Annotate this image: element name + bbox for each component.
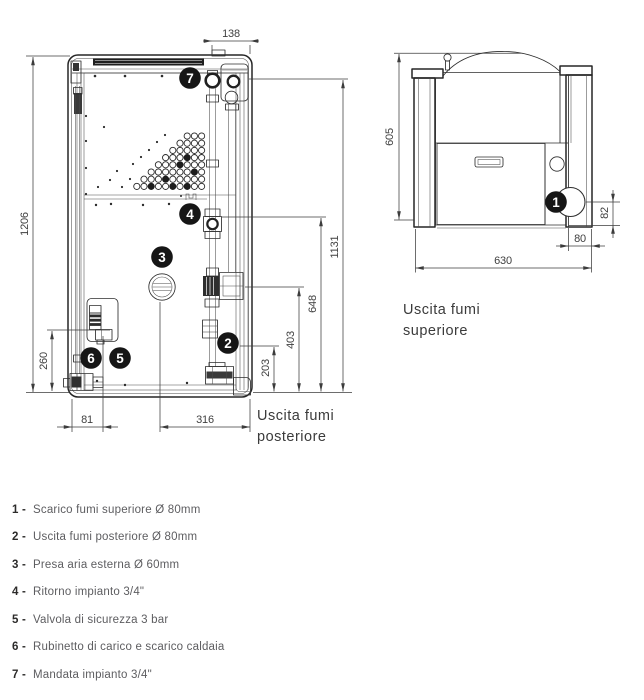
callout-2: 2 — [217, 332, 239, 354]
callout-5: 5 — [109, 347, 131, 369]
drawer-front — [437, 144, 545, 225]
rear-view-dimensions: 138 1206 260 1131 648 403 203 81 316 Usc… — [19, 28, 352, 445]
callout-3: 3 — [151, 246, 173, 268]
callout-5-number: 5 — [116, 351, 124, 366]
top-outlet-label-line1: Uscita fumi — [403, 302, 480, 318]
dim-260: 260 — [38, 352, 50, 370]
callout-7-number: 7 — [186, 71, 194, 86]
top-vent-slot — [93, 59, 204, 66]
air-intake — [149, 274, 175, 300]
safety-valve — [87, 299, 118, 345]
air-valve-knob — [444, 54, 451, 61]
dim-648: 648 — [307, 295, 319, 313]
dim-605: 605 — [384, 128, 396, 146]
rear-outlet-label-line2: posteriore — [257, 429, 326, 445]
rear-outlet-label-line1: Uscita fumi — [257, 408, 334, 424]
dim-316: 316 — [196, 414, 214, 426]
dim-1206: 1206 — [19, 212, 31, 236]
callout-3-number: 3 — [158, 250, 166, 265]
boiler-dimension-diagram: 138 1206 260 1131 648 403 203 81 316 Usc… — [0, 0, 644, 700]
flow-connection-fitting — [206, 74, 220, 88]
drain-cock — [64, 86, 104, 391]
top-outlet-label-line2: superiore — [403, 323, 468, 339]
dim-138: 138 — [222, 28, 240, 40]
right-panel-cap — [560, 66, 592, 75]
callout-1: 1 — [545, 191, 567, 213]
callout-4: 4 — [179, 203, 201, 225]
callout-7: 7 — [179, 67, 201, 89]
vent-hole-pattern — [85, 115, 205, 195]
dim-403: 403 — [285, 331, 297, 349]
service-hole — [550, 157, 564, 171]
dim-81: 81 — [81, 414, 93, 426]
dim-630: 630 — [494, 255, 512, 267]
dim-80: 80 — [574, 233, 586, 245]
top-view-dimensions: 605 630 82 80 Uscita fumi superiore — [384, 53, 620, 339]
callout-1-number: 1 — [552, 195, 560, 210]
callout-6: 6 — [80, 347, 102, 369]
technical-drawing-page: 138 1206 260 1131 648 403 203 81 316 Usc… — [0, 0, 644, 700]
left-panel-cap — [412, 69, 443, 78]
callout-4-number: 4 — [186, 207, 194, 222]
dim-82: 82 — [599, 207, 611, 219]
callout-2-number: 2 — [224, 336, 232, 351]
callout-6-number: 6 — [87, 351, 95, 366]
dim-203: 203 — [260, 359, 272, 377]
drawer-handle — [475, 157, 503, 167]
callout-badges: 7 4 3 2 6 5 1 — [80, 67, 567, 369]
dim-1131: 1131 — [329, 235, 341, 258]
